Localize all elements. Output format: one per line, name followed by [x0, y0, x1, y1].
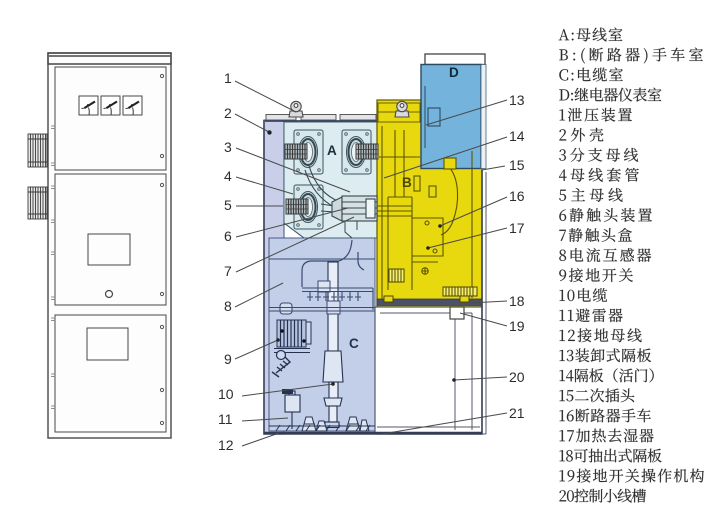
svg-text:B: B: [402, 175, 412, 190]
svg-text:5: 5: [224, 197, 232, 213]
svg-text:19: 19: [509, 318, 525, 334]
svg-text:3: 3: [224, 139, 232, 155]
svg-text:16: 16: [509, 188, 525, 204]
svg-text:10: 10: [218, 386, 234, 402]
svg-text:20: 20: [509, 369, 525, 385]
svg-text:13: 13: [509, 92, 525, 108]
svg-text:15: 15: [509, 157, 525, 173]
svg-text:A: A: [327, 143, 337, 158]
svg-text:C: C: [349, 336, 359, 351]
svg-text:7: 7: [224, 263, 232, 279]
svg-text:4: 4: [224, 168, 232, 184]
svg-text:17: 17: [509, 220, 525, 236]
svg-text:21: 21: [509, 405, 525, 421]
svg-text:11: 11: [218, 411, 233, 427]
svg-text:6: 6: [224, 228, 232, 244]
svg-text:14: 14: [509, 128, 525, 144]
svg-text:2: 2: [224, 105, 232, 121]
svg-text:1: 1: [224, 70, 232, 86]
svg-text:18: 18: [509, 293, 525, 309]
svg-text:9: 9: [224, 351, 232, 367]
svg-text:12: 12: [218, 437, 234, 453]
svg-text:D: D: [449, 65, 459, 80]
svg-text:8: 8: [224, 298, 232, 314]
